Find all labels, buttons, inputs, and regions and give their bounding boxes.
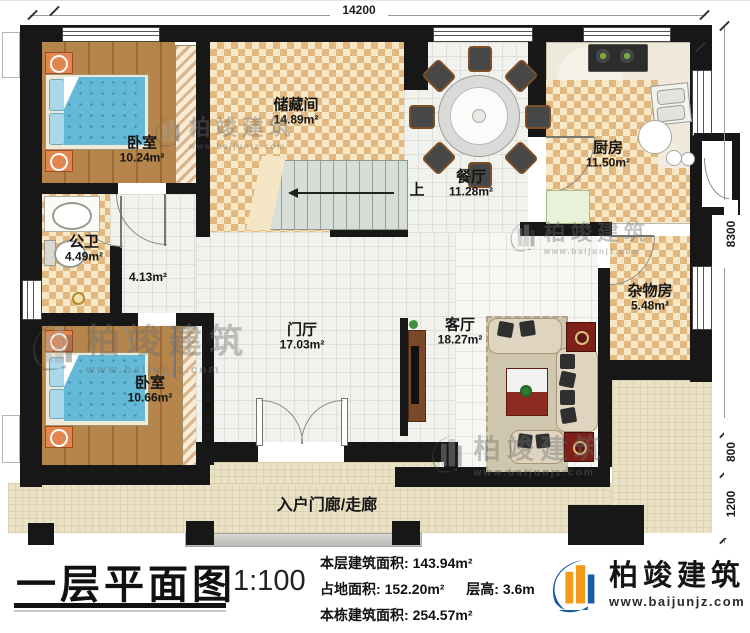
wall-left <box>20 25 42 487</box>
room-label-storage: 储藏间 14.89m² <box>273 96 318 127</box>
room-area: 4.13m² <box>129 271 167 285</box>
sofa-cushion <box>559 371 577 389</box>
wall-kitchen-bottom <box>520 222 612 236</box>
drawing-title: 一层平面图 <box>16 552 236 610</box>
room-area: 14.89m² <box>273 114 318 128</box>
stat-value: 254.57m² <box>413 607 473 623</box>
entry-threshold <box>258 442 344 462</box>
window-sill-left-2 <box>2 415 20 463</box>
room-name: 餐厅 <box>449 168 493 185</box>
wall-bedroom2-bottom <box>20 465 210 485</box>
wall-utility-left <box>598 268 610 360</box>
stats-block: 本层建筑面积: 143.94m² 占地面积: 152.20m² 层高: 3.6m… <box>320 550 535 628</box>
fridge-icon <box>546 190 590 224</box>
sink-basin-icon <box>656 88 685 106</box>
brand-url: www.baijunjz.com <box>609 594 745 609</box>
room-name: 门厅 <box>280 321 325 338</box>
dining-chair <box>525 105 551 129</box>
window-top-bedroom1 <box>62 27 160 42</box>
room-name: 杂物房 <box>627 282 672 299</box>
stairs-arrow-head <box>288 188 298 198</box>
wall-jog-right <box>444 442 458 487</box>
room-label-kitchen: 厨房 11.50m² <box>586 139 630 170</box>
bedroom1-door-leaf <box>164 194 166 246</box>
porch-column-2 <box>186 521 214 545</box>
sofa-cushion <box>517 433 533 449</box>
side-table-decor-icon <box>575 331 589 345</box>
room-name: 卧室 <box>128 374 173 391</box>
wall-living-right <box>598 380 612 467</box>
dining-chair <box>468 46 492 72</box>
dimension-right-upper-value: 8300 <box>724 200 738 268</box>
small-basin-icon <box>666 150 682 166</box>
room-label-utility: 杂物房 5.48m² <box>627 282 672 313</box>
brand-logo-icon <box>543 556 601 614</box>
bedroom1-wardrobe <box>175 45 198 185</box>
room-area: 11.50m² <box>586 157 630 171</box>
room-name: 厨房 <box>586 139 630 156</box>
dining-table-hub <box>472 109 486 123</box>
table-plant-icon <box>520 385 532 397</box>
window-right-kitchen <box>692 70 712 136</box>
dining-chair <box>409 105 435 129</box>
wall-bedroom1-bottom-a <box>42 183 118 194</box>
title-underline-light <box>14 610 226 612</box>
sofa-cushion <box>560 390 575 405</box>
utility-door-leaf <box>610 235 654 237</box>
window-top-kitchen <box>583 27 671 42</box>
room-label-foyer: 门厅 17.03m² <box>280 321 325 352</box>
wall-bathroom-right <box>110 246 122 313</box>
window-top-dining <box>433 27 533 42</box>
wall-tv-stub <box>400 318 408 436</box>
stairs-up-text: 上 <box>409 181 424 198</box>
porch-column-3 <box>392 521 420 545</box>
title-underline <box>14 603 226 608</box>
sofa-cushion <box>560 354 575 369</box>
stairs-up-label: 上 <box>409 181 424 198</box>
room-area: 5.48m² <box>627 300 672 314</box>
sofa-cushion <box>560 407 577 424</box>
porch-column-1 <box>28 523 54 545</box>
room-name: 客厅 <box>438 316 483 333</box>
sink-basin-icon <box>656 105 685 123</box>
entry-steps <box>185 533 422 547</box>
nightstand-lamp-icon <box>50 333 68 351</box>
nightstand-lamp-icon <box>50 55 68 73</box>
room-name: 公卫 <box>65 233 103 250</box>
pillow <box>49 357 65 387</box>
room-label-living: 客厅 18.27m² <box>438 316 483 347</box>
burner-flame-icon <box>600 53 606 59</box>
room-area: 18.27m² <box>438 334 483 348</box>
tv-icon <box>411 346 419 404</box>
sofa-cushion <box>519 320 536 337</box>
pillow <box>49 113 65 145</box>
stat-label: 本栋建筑面积: <box>320 607 413 623</box>
dimension-right-lower-value: 1200 <box>724 470 738 538</box>
room-label-corridor: 4.13m² <box>129 271 167 285</box>
page-edge-line <box>0 0 750 1</box>
window-right-utility <box>692 266 712 330</box>
stat-value: 143.94m² <box>413 555 473 571</box>
wall-utility-bottom <box>598 360 712 380</box>
stat-value: 3.6m <box>503 581 535 597</box>
wall-bedroom1-bottom-b <box>166 183 196 194</box>
room-label-bedroom2: 卧室 10.66m² <box>128 374 173 405</box>
round-basin-icon <box>638 120 672 154</box>
plant-icon <box>409 320 418 329</box>
room-name: 入户门廊/走廊 <box>277 497 377 515</box>
small-basin-icon <box>681 152 695 166</box>
pillow <box>49 389 65 419</box>
stat-row: 本栋建筑面积: 254.57m² <box>320 602 535 628</box>
stat-value: 152.20m² <box>385 581 445 597</box>
brand-name: 柏竣建筑 <box>609 562 745 591</box>
room-area: 17.03m² <box>280 339 325 353</box>
room-area: 4.49m² <box>65 251 103 265</box>
nightstand-lamp-icon <box>50 429 68 447</box>
drawing-scale: 1:100 <box>233 565 306 598</box>
room-label-porch: 入户门廊/走廊 <box>277 497 377 515</box>
room-label-dining: 餐厅 11.28m² <box>449 168 493 199</box>
sink-icon <box>52 202 92 230</box>
porch-column-4 <box>568 505 644 545</box>
room-area: 10.24m² <box>120 152 165 166</box>
stat-row: 占地面积: 152.20m² 层高: 3.6m <box>320 576 535 602</box>
brand-logo: 柏竣建筑 www.baijunjz.com <box>543 556 745 614</box>
floor-drain-icon <box>72 292 85 305</box>
floor-plan-page: 卧室 10.24m² 储藏间 14.89m² 餐厅 11.28m² 厨房 11.… <box>0 0 750 633</box>
burner-flame-icon <box>624 53 630 59</box>
nightstand-lamp-icon <box>50 153 68 171</box>
room-area: 11.28m² <box>449 186 493 200</box>
room-name: 卧室 <box>120 134 165 151</box>
bathroom-door-leaf <box>120 196 122 248</box>
window-sill-left-1 <box>2 32 20 78</box>
kitchen-door-leaf <box>546 136 594 138</box>
room-label-bathroom: 公卫 4.49m² <box>65 233 103 264</box>
wall-foyer-bottom-right <box>344 442 458 462</box>
stat-row: 本层建筑面积: 143.94m² <box>320 550 535 576</box>
stat-label: 本层建筑面积: <box>320 555 413 571</box>
bedroom2-door-leaf <box>174 326 176 378</box>
wall-bedroom1-storage <box>196 25 210 237</box>
room-name: 储藏间 <box>273 96 318 113</box>
sofa-cushion <box>497 321 514 338</box>
dimension-top-value: 14200 <box>330 3 388 17</box>
wall-jog-left <box>196 442 210 485</box>
room-label-bedroom1: 卧室 10.24m² <box>120 134 165 165</box>
wall-storage-dining <box>404 25 428 90</box>
side-table-decor-icon <box>573 441 587 455</box>
stairs-arrow-line <box>298 192 394 194</box>
stat-label: 占地面积: <box>320 581 385 597</box>
room-area: 10.66m² <box>128 392 173 406</box>
window-left-bathroom <box>22 280 42 320</box>
pillow <box>49 79 65 111</box>
sofa-cushion <box>535 433 550 448</box>
stat-label: 层高: <box>466 581 503 597</box>
